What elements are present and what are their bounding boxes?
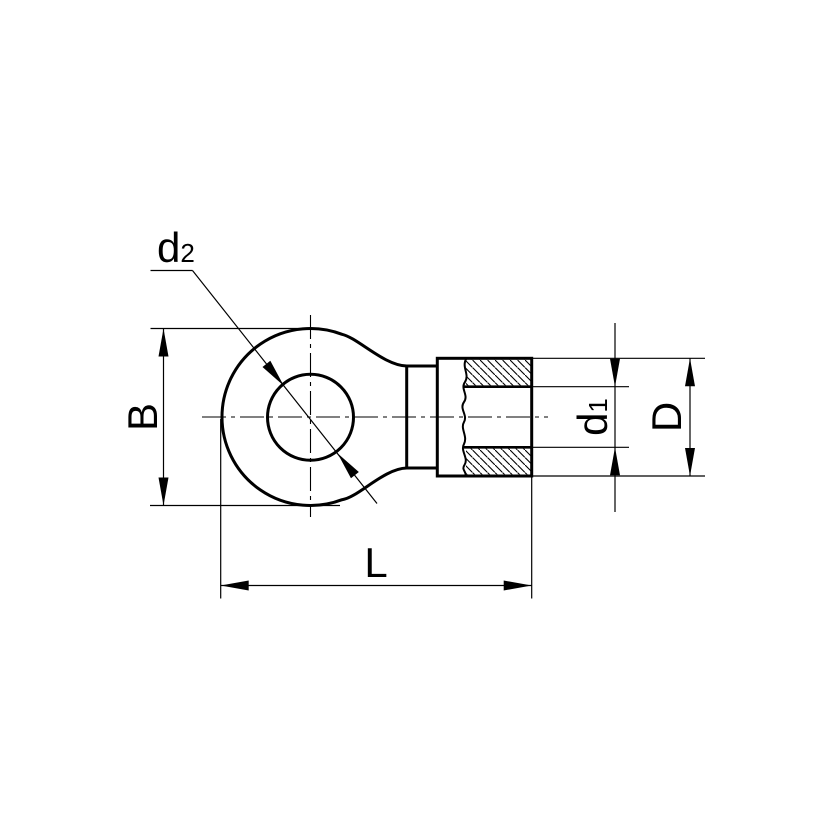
dimension-D: D (533, 358, 705, 476)
arrowhead (159, 329, 169, 357)
dimension-d2: d2 (151, 224, 378, 504)
dimension-label-d1: d1 (569, 398, 616, 436)
hatch-area-bottom (466, 449, 531, 475)
break-line (462, 358, 466, 476)
dimension-B: B (119, 329, 340, 506)
dimension-label-D: D (643, 402, 690, 432)
dimension-label-d2: d2 (157, 224, 195, 271)
drawing-canvas: B L d1 D (0, 0, 820, 820)
dimension-label-L: L (364, 539, 387, 586)
dimension-L: L (221, 419, 532, 599)
arrowhead (610, 359, 620, 387)
arrowhead (504, 581, 532, 591)
arrowhead (159, 478, 169, 506)
arrowhead (685, 448, 695, 476)
arrowhead (685, 358, 695, 386)
label-subscript: 1 (583, 398, 613, 412)
arrowhead (221, 581, 249, 591)
dimension-label-B: B (119, 403, 166, 431)
hatch-area-top (466, 360, 531, 386)
arrowhead (610, 447, 620, 475)
label-base: d (157, 224, 180, 271)
ring-terminal-technical-drawing: B L d1 D (0, 0, 820, 820)
label-subscript: 2 (180, 238, 194, 268)
label-base: d (569, 413, 616, 436)
